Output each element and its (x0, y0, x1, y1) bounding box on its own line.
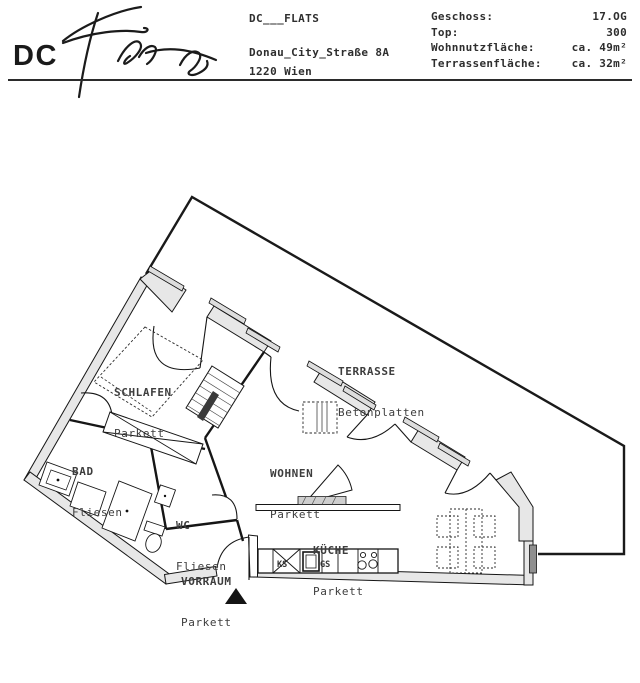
dining-set (437, 509, 495, 573)
fact-label: Wohnnutzfläche: (431, 41, 535, 57)
fact-row-geschoss: Geschoss: 17.OG (431, 10, 627, 26)
chair (474, 516, 495, 537)
room-label-terrasse: TERRASSE Betonplatten (338, 338, 425, 433)
exterior-walls (24, 277, 533, 585)
room-name: KÜCHE (313, 544, 364, 558)
room-name: WC (176, 519, 227, 533)
header-divider (8, 79, 632, 81)
fact-table: Geschoss: 17.OG Top: 300 Wohnnutzfläche:… (431, 10, 627, 73)
fact-value: ca. 49m² (572, 41, 627, 57)
room-label-bad: BAD Fliesen (72, 438, 123, 533)
room-label-vorraum: VORRAUM Parkett (181, 548, 232, 643)
living-furniture (303, 402, 337, 433)
floorplan-page: { "header": { "logo": { "monogram": "DC"… (0, 0, 640, 683)
chair (437, 547, 458, 568)
appliance-label-gs: GS (320, 560, 330, 570)
chair (437, 516, 458, 537)
chair (474, 547, 495, 568)
room-name: SCHLAFEN (114, 386, 172, 400)
room-name: WOHNEN (270, 467, 321, 481)
room-floor: Parkett (313, 585, 364, 599)
fact-value: 300 (606, 26, 627, 42)
fact-row-top: Top: 300 (431, 26, 627, 42)
appliance-label-ks: KS (277, 560, 287, 570)
terrace-door-bar (530, 545, 537, 573)
vestibule-wall (249, 535, 258, 577)
fact-label: Geschoss: (431, 10, 493, 26)
fact-row-wohnnutzflaeche: Wohnnutzfläche: ca. 49m² (431, 41, 627, 57)
room-floor: Parkett (181, 616, 232, 630)
room-name: BAD (72, 465, 123, 479)
room-label-schlafen: SCHLAFEN Parkett (114, 359, 172, 454)
room-floor: Fliesen (72, 506, 123, 520)
fact-row-terrassenflaeche: Terrassenfläche: ca. 32m² (431, 57, 627, 73)
project-name: DC___FLATS (249, 12, 319, 25)
room-floor: Betonplatten (338, 406, 425, 420)
sideboard (303, 402, 337, 433)
room-name: VORRAUM (181, 575, 232, 589)
flats-signature (0, 0, 240, 125)
address-street: Donau_City_Straße 8A (249, 46, 389, 59)
fact-value: 17.OG (592, 10, 627, 26)
room-name: TERRASSE (338, 365, 425, 379)
room-floor: Parkett (114, 427, 172, 441)
fact-label: Terrassenfläche: (431, 57, 542, 73)
address-city: 1220 Wien (249, 65, 312, 78)
fact-label: Top: (431, 26, 459, 42)
fact-value: ca. 32m² (572, 57, 627, 73)
